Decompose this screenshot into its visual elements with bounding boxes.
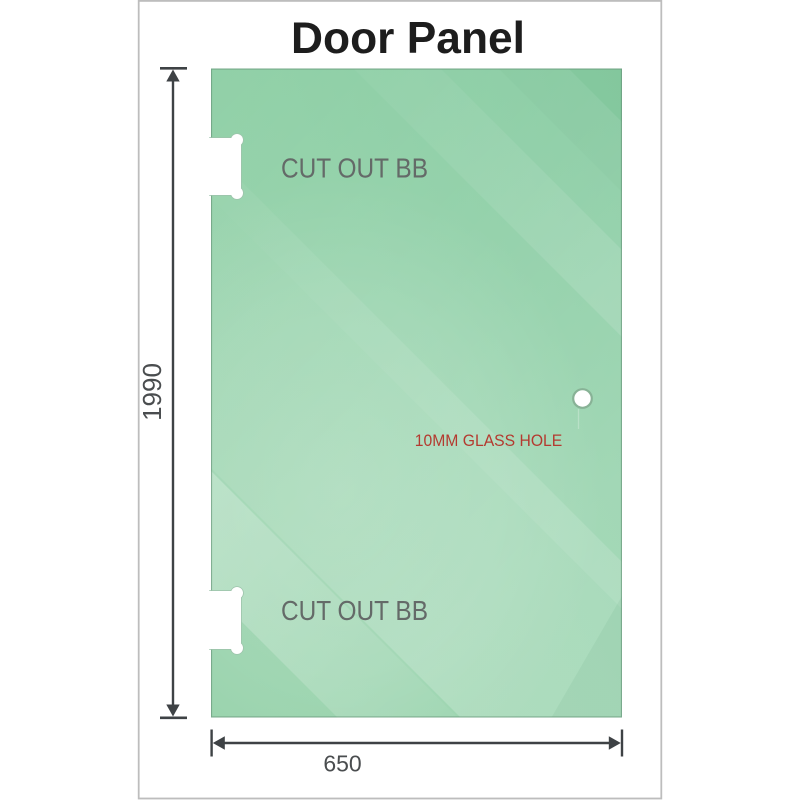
svg-text:Door Panel: Door Panel	[291, 14, 525, 63]
svg-text:CUT OUT BB: CUT OUT BB	[281, 595, 428, 626]
svg-text:650: 650	[323, 751, 361, 777]
svg-text:10MM GLASS HOLE: 10MM GLASS HOLE	[415, 431, 563, 450]
svg-text:1990: 1990	[137, 363, 167, 421]
svg-text:CUT OUT BB: CUT OUT BB	[281, 152, 428, 183]
